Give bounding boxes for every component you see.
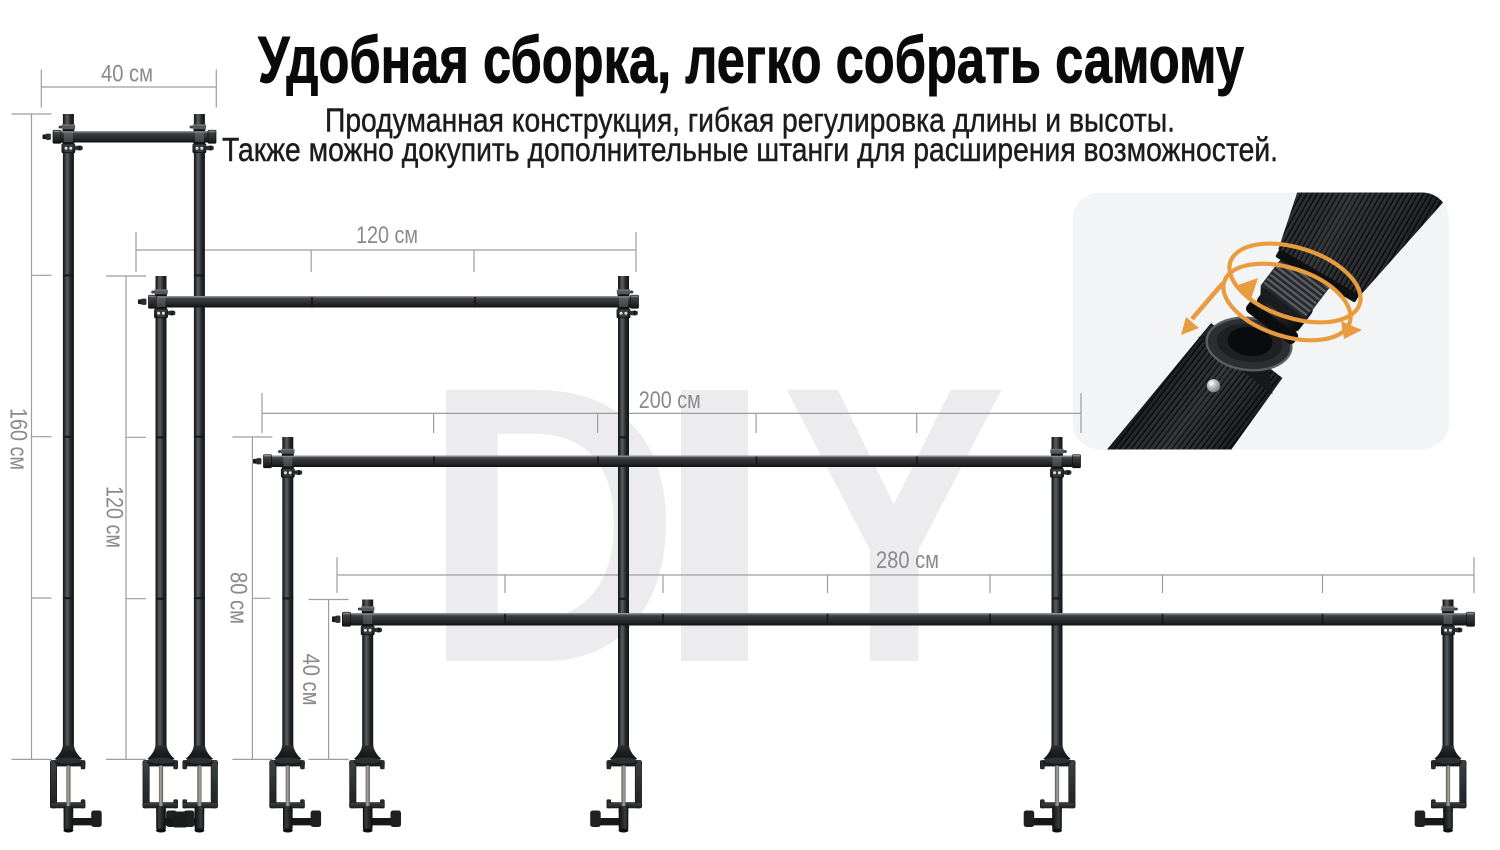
- svg-text:Удобная сборка, легко собрать: Удобная сборка, легко собрать самому: [258, 22, 1244, 96]
- svg-text:40 см: 40 см: [297, 654, 324, 706]
- svg-text:Также можно докупить дополните: Также можно докупить дополнительные штан…: [222, 131, 1278, 168]
- svg-text:120 см: 120 см: [101, 486, 128, 548]
- svg-text:160 см: 160 см: [5, 408, 32, 470]
- svg-text:80 см: 80 см: [225, 572, 252, 624]
- svg-text:Y: Y: [781, 305, 1007, 745]
- svg-text:280 см: 280 см: [876, 547, 939, 574]
- svg-text:D: D: [422, 305, 681, 745]
- svg-text:120 см: 120 см: [356, 222, 418, 249]
- svg-text:200 см: 200 см: [639, 387, 701, 414]
- svg-text:40 см: 40 см: [101, 61, 153, 88]
